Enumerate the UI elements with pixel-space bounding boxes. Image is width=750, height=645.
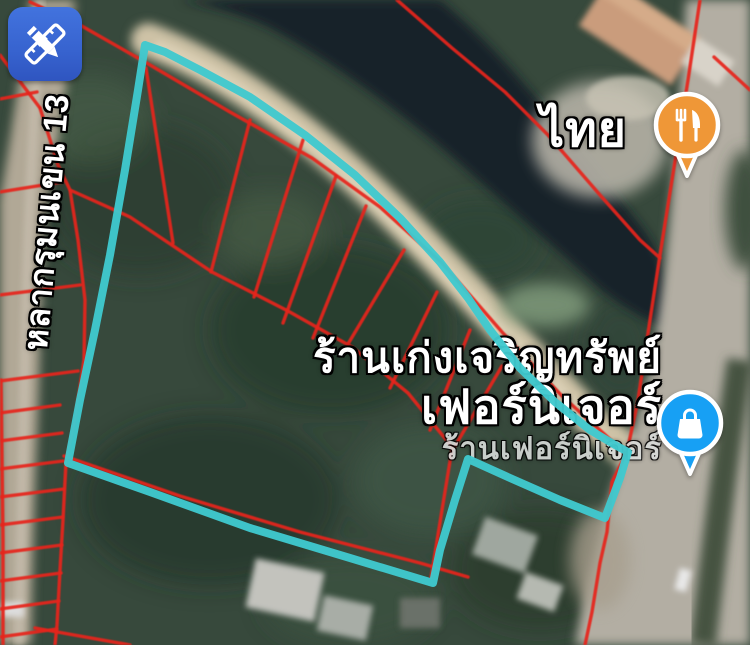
plot-highlight-boundary xyxy=(68,45,628,583)
highlight-boundary-layer xyxy=(0,0,750,645)
shopping-pin[interactable] xyxy=(652,388,728,478)
map-canvas[interactable]: ไทย ร้านเก่งเจริญทรัพย์ เฟอร์นิเจอร์ ร้า… xyxy=(0,0,750,645)
draw-edit-badge[interactable] xyxy=(8,7,82,81)
restaurant-pin[interactable] xyxy=(649,90,725,180)
pin-body xyxy=(656,94,718,156)
pencil-ruler-icon xyxy=(21,20,69,68)
